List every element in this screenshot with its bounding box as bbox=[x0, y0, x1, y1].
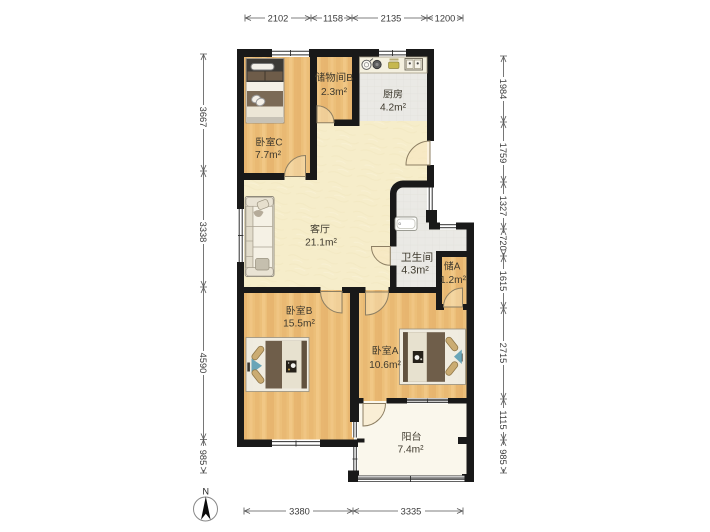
svg-text:1158: 1158 bbox=[323, 13, 343, 23]
svg-text:A: A bbox=[392, 346, 399, 357]
svg-text:10.6m²: 10.6m² bbox=[369, 360, 401, 371]
svg-text:3667: 3667 bbox=[198, 107, 208, 128]
svg-text:2135: 2135 bbox=[381, 13, 402, 23]
svg-text:7.7m²: 7.7m² bbox=[255, 150, 282, 161]
svg-text:1327: 1327 bbox=[498, 196, 508, 217]
svg-text:2102: 2102 bbox=[268, 13, 289, 23]
svg-text:B: B bbox=[346, 72, 353, 84]
svg-text:1615: 1615 bbox=[498, 271, 508, 292]
svg-text:C: C bbox=[275, 138, 282, 149]
svg-text:3338: 3338 bbox=[198, 222, 208, 243]
svg-text:4590: 4590 bbox=[198, 353, 208, 374]
svg-text:N: N bbox=[203, 486, 210, 496]
svg-text:4.2m²: 4.2m² bbox=[380, 103, 407, 114]
svg-text:985: 985 bbox=[198, 450, 208, 466]
svg-text:1115: 1115 bbox=[498, 410, 508, 429]
svg-text:3380: 3380 bbox=[289, 506, 310, 516]
svg-text:1200: 1200 bbox=[435, 13, 456, 23]
svg-text:1.2m²: 1.2m² bbox=[440, 275, 467, 286]
svg-text:2715: 2715 bbox=[498, 343, 508, 364]
svg-text:A: A bbox=[454, 262, 461, 273]
svg-text:21.1m²: 21.1m² bbox=[305, 238, 337, 249]
svg-text:4.3m²: 4.3m² bbox=[401, 265, 429, 277]
svg-text:7.4m²: 7.4m² bbox=[397, 445, 424, 456]
svg-text:B: B bbox=[306, 306, 313, 317]
svg-text:985: 985 bbox=[498, 449, 508, 465]
svg-text:1984: 1984 bbox=[498, 79, 508, 100]
svg-text:720: 720 bbox=[498, 235, 508, 251]
svg-text:2.3m²: 2.3m² bbox=[321, 87, 348, 98]
svg-text:3335: 3335 bbox=[401, 506, 422, 516]
svg-text:15.5m²: 15.5m² bbox=[283, 319, 315, 330]
svg-text:1759: 1759 bbox=[498, 143, 508, 164]
